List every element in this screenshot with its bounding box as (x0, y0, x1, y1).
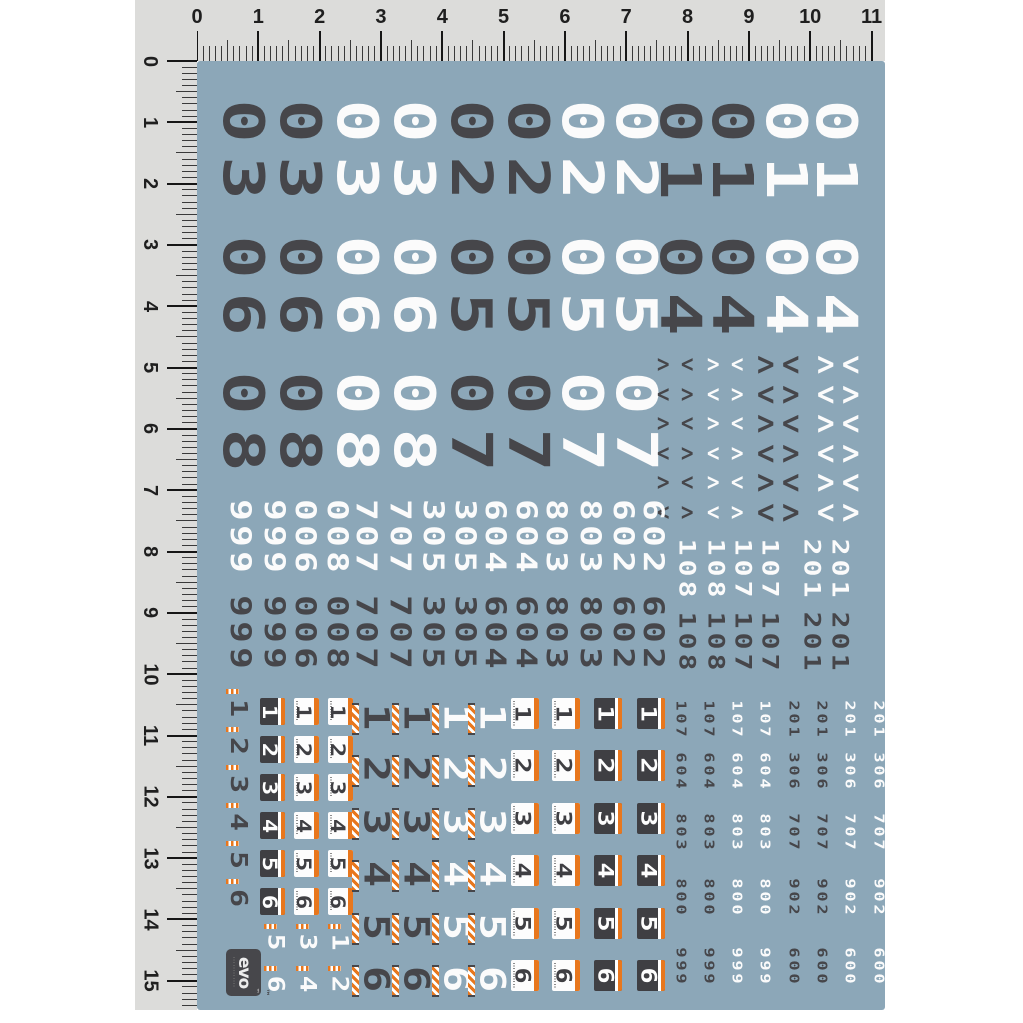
ruler-tick (528, 46, 529, 61)
chevron-icon: < (679, 409, 695, 439)
big-number-column-digit: 3 (222, 149, 266, 206)
medium-number-column-digit: 9 (261, 645, 285, 671)
ruler-tick (663, 46, 664, 61)
ruler-tick (755, 46, 756, 61)
number-box-decal: 5 (511, 908, 539, 939)
ruler-tick (182, 594, 197, 595)
ruler-tick (176, 520, 197, 521)
number-box-decal: 3 (328, 774, 353, 801)
chevron-icon: < (705, 439, 721, 469)
box-digit: 5 (637, 908, 659, 939)
ruler-tick (380, 31, 382, 61)
ruler-tick (718, 40, 719, 61)
mini-number-column-digit: 9 (757, 972, 772, 985)
stripe-bar (534, 855, 539, 886)
ruler-tick (650, 46, 651, 61)
number-box-decal: 4 (294, 812, 319, 839)
chevron-icon: < (755, 498, 777, 528)
small-number-column-digit: 0 (705, 630, 725, 651)
stripe-bar (575, 698, 580, 729)
stripe-bar (534, 750, 539, 781)
mini-number-column-digit: 9 (673, 972, 688, 985)
medium-number-column-digit: 6 (610, 593, 634, 619)
ruler-tick (182, 772, 197, 773)
medium-number-column-digit: 9 (261, 619, 285, 645)
mini-number-column-digit: 7 (814, 838, 829, 851)
box-digit: 6 (552, 960, 574, 991)
big-number-column-digit: 0 (279, 92, 323, 149)
ruler-tick (182, 232, 197, 233)
ruler-label: 1 (243, 6, 273, 29)
big-number-column-digit: 0 (615, 364, 659, 421)
number-box-decal: 6 (328, 888, 353, 915)
ruler-tick (182, 600, 197, 601)
medium-number-column-digit: 9 (261, 523, 285, 549)
ruler-label: 6 (550, 6, 580, 29)
ruler-tick (583, 46, 584, 61)
ruler-label: 6 (139, 416, 161, 442)
mini-number-column-digit: 0 (729, 903, 744, 916)
ruler-tick (182, 294, 197, 295)
ruler-tick (411, 40, 412, 61)
chevron-icon: < (729, 409, 745, 439)
stripe-bar (314, 774, 319, 801)
ruler-tick (176, 214, 197, 215)
medium-number-column-digit: 0 (292, 497, 316, 523)
ruler-tick (479, 46, 480, 61)
mini-number-column-digit: 0 (786, 825, 801, 838)
medium-number-column-digit: 7 (387, 549, 411, 575)
number-box-decal: 5 (637, 908, 665, 939)
medium-number-column-digit: 5 (452, 549, 476, 575)
mini-number-column-digit: 4 (757, 777, 772, 790)
tagged-digit-decal: 6 (402, 964, 428, 994)
big-number-column-digit: 8 (336, 421, 380, 478)
ruler-tick (497, 46, 498, 61)
box-digit: 4 (260, 812, 279, 839)
medium-number-column-digit: 7 (387, 645, 411, 671)
ruler-tick (362, 46, 363, 61)
ruler-tick (182, 238, 197, 239)
mini-number-column-digit: 8 (757, 877, 772, 890)
ruler-tick (176, 582, 197, 583)
ruler-tick (182, 539, 197, 540)
ruler-tick (182, 993, 197, 994)
mini-number-column-digit: 0 (673, 903, 688, 916)
big-number-column-digit: 8 (279, 421, 323, 478)
medium-number-column-digit: 3 (420, 497, 444, 523)
ruler-tick (182, 465, 197, 466)
mini-number-column-digit: 8 (673, 877, 688, 890)
ruler-tick (182, 784, 197, 785)
medium-number-column-digit: 8 (324, 549, 348, 575)
ruler-tick (182, 416, 197, 417)
stripe-bar (314, 812, 319, 839)
ruler-tick (182, 741, 197, 742)
tagged-digit-decal: 3 (442, 807, 468, 837)
small-number-column-digit: 0 (801, 557, 821, 578)
ruler-tick (182, 962, 197, 963)
small-number-column-digit: 0 (705, 557, 725, 578)
mini-number-column-digit: 3 (729, 838, 744, 851)
mini-number-column-digit: 2 (786, 903, 801, 916)
ruler-tick (182, 974, 197, 975)
chevron-icon: < (729, 468, 745, 498)
ruler-tick (182, 931, 197, 932)
trademark-symbol: ™ (253, 988, 260, 994)
ruler-tick (182, 116, 197, 117)
big-number-column-digit: 6 (336, 285, 380, 342)
mini-number-column-digit: 0 (757, 764, 772, 777)
big-number-column-digit: 0 (336, 364, 380, 421)
stripe-bar (534, 698, 539, 729)
ruler-label: 0 (182, 6, 212, 29)
small-number-column-digit: 1 (732, 536, 752, 557)
mini-number-column-digit: 0 (786, 959, 801, 972)
small-number-column-digit: 1 (676, 536, 696, 557)
ruler-tick (182, 753, 197, 754)
medium-number-column-digit: 7 (387, 497, 411, 523)
big-number-column-digit: 6 (393, 285, 437, 342)
box-digit: 1 (637, 698, 659, 729)
big-number-column-digit: 3 (336, 149, 380, 206)
ruler-tick (182, 527, 197, 528)
number-box-decal: 1 (260, 698, 285, 725)
mini-number-column-digit: 1 (729, 699, 744, 712)
small-number-column-digit: 8 (676, 578, 696, 599)
ruler-tick (491, 46, 492, 61)
box-digit: 2 (511, 750, 533, 781)
ruler-tick (209, 46, 210, 61)
ruler-tick (182, 913, 197, 914)
box-digit: 6 (260, 888, 279, 915)
mini-number-column-digit: 9 (871, 877, 886, 890)
box-digit: 4 (637, 855, 659, 886)
chevron-icon: < (729, 350, 745, 380)
medium-number-column-digit: 0 (292, 523, 316, 549)
ruler-tick (182, 435, 197, 436)
ruler-tick (176, 643, 197, 644)
number-box-decal: 1 (294, 698, 319, 725)
mini-number-column-digit: 8 (701, 877, 716, 890)
ruler-tick (472, 40, 473, 61)
ruler-tick (182, 661, 197, 662)
ruler-tick (344, 46, 345, 61)
number-box-decal: 6 (260, 888, 285, 915)
number-box-decal: 5 (552, 908, 580, 939)
tagged-digit-decal: 3 (298, 931, 316, 953)
number-box-decal: 1 (328, 698, 353, 725)
box-digit: 2 (637, 750, 659, 781)
chevron-icon: > (780, 498, 802, 528)
ruler-tick (182, 441, 197, 442)
mini-number-column-digit: 3 (842, 751, 857, 764)
medium-number-column-digit: 0 (292, 619, 316, 645)
stripe-bar (534, 960, 539, 991)
mini-number-column-digit: 1 (871, 725, 886, 738)
mini-number-column-digit: 0 (786, 764, 801, 777)
ruler-label: 11 (857, 6, 887, 29)
box-digit: 4 (328, 812, 347, 839)
ruler-tick (182, 103, 197, 104)
ruler-tick (319, 31, 321, 61)
chevron-icon: < (655, 439, 671, 469)
ruler-tick (182, 588, 197, 589)
medium-number-column-digit: 2 (610, 549, 634, 575)
mini-number-column-digit: 8 (673, 812, 688, 825)
medium-number-column-digit: 6 (640, 497, 664, 523)
chevron-icon: > (655, 350, 671, 380)
chevron-icon: > (840, 498, 862, 528)
tagged-digit-decal: 2 (228, 734, 248, 758)
ruler-tick (828, 46, 829, 61)
ruler-tick (182, 379, 197, 380)
number-box-decal: 4 (637, 855, 665, 886)
mini-number-column-digit: 0 (673, 764, 688, 777)
box-digit: 5 (511, 908, 533, 939)
ruler-tick (724, 46, 725, 61)
ruler-tick (436, 46, 437, 61)
big-number-column-digit: 2 (561, 149, 605, 206)
stripe-bar (575, 803, 580, 834)
ruler-tick (589, 46, 590, 61)
medium-number-column-digit: 9 (227, 593, 251, 619)
ruler-tick (748, 31, 750, 61)
ruler-tick (288, 40, 289, 61)
mini-number-column-digit: 2 (871, 903, 886, 916)
ruler-tick (176, 275, 197, 276)
ruler-tick (295, 46, 296, 61)
big-number-column-digit: 0 (815, 228, 859, 285)
mini-number-column-digit: 0 (757, 825, 772, 838)
medium-number-column-digit: 2 (610, 645, 634, 671)
big-number-column-digit: 0 (222, 364, 266, 421)
ruler-tick (167, 367, 197, 369)
ruler-tick (182, 165, 197, 166)
ruler-tick (167, 735, 197, 737)
ruler-tick (182, 146, 197, 147)
chevron-icon: < (679, 350, 695, 380)
mini-number-column-digit: 0 (701, 712, 716, 725)
ruler-tick (859, 46, 860, 61)
tagged-digit-decal: 5 (266, 931, 284, 953)
stripe-bar (575, 908, 580, 939)
mini-number-column-digit: 9 (786, 877, 801, 890)
medium-number-column-digit: 2 (640, 549, 664, 575)
ruler-tick (325, 46, 326, 61)
ruler-tick (182, 576, 197, 577)
medium-number-column-digit: 9 (227, 497, 251, 523)
ruler-tick (182, 202, 197, 203)
ruler-tick (182, 668, 197, 669)
ruler-tick (182, 453, 197, 454)
stripe-tag (328, 966, 341, 971)
decal-sheet-screenshot: evo ™ 0306080306080306080306080205070205… (0, 0, 1023, 1023)
mini-number-column-digit: 7 (871, 812, 886, 825)
mini-number-column-digit: 0 (814, 972, 829, 985)
ruler-tick (822, 46, 823, 61)
small-number-column-digit: 1 (759, 536, 779, 557)
ruler-tick (182, 937, 197, 938)
ruler-tick (809, 31, 811, 61)
tagged-digit-decal: 5 (442, 912, 468, 942)
small-number-column-digit: 1 (829, 578, 849, 599)
mini-number-column-digit: 0 (701, 903, 716, 916)
mini-number-column-digit: 3 (701, 838, 716, 851)
medium-number-column-digit: 7 (353, 549, 377, 575)
box-digit: 1 (294, 698, 313, 725)
ruler-tick (840, 40, 841, 61)
ruler-tick (182, 97, 197, 98)
ruler-tick (167, 305, 197, 307)
mini-number-column-digit: 4 (673, 777, 688, 790)
mini-number-column-digit: 1 (814, 725, 829, 738)
ruler-tick (167, 244, 197, 246)
tagged-digit-decal: 4 (362, 859, 388, 889)
big-number-column-digit: 5 (450, 285, 494, 342)
stripe-tag (328, 924, 341, 929)
ruler-tick (182, 349, 197, 350)
number-box-decal: 1 (552, 698, 580, 729)
mini-number-column-digit: 6 (842, 946, 857, 959)
tagged-digit-decal: 5 (402, 912, 428, 942)
big-number-column-digit: 5 (507, 285, 551, 342)
ruler-tick (182, 569, 197, 570)
ruler-tick (509, 46, 510, 61)
ruler-tick (182, 67, 197, 68)
ruler-label: 10 (139, 661, 161, 687)
ruler-tick (182, 845, 197, 846)
medium-number-column-digit: 9 (227, 645, 251, 671)
ruler-tick (681, 46, 682, 61)
medium-number-column-digit: 9 (261, 593, 285, 619)
ruler-tick (270, 46, 271, 61)
mini-number-column-digit: 1 (786, 725, 801, 738)
ruler-tick (182, 281, 197, 282)
ruler-tick (182, 625, 197, 626)
ruler-tick (571, 46, 572, 61)
mini-number-column-digit: 6 (701, 751, 716, 764)
mini-number-column-digit: 3 (757, 838, 772, 851)
mini-number-column-digit: 0 (729, 764, 744, 777)
ruler-tick (182, 361, 197, 362)
number-box-decal: 5 (294, 850, 319, 877)
ruler-label: 10 (795, 6, 825, 29)
mini-number-column-digit: 6 (871, 777, 886, 790)
evo-logo: evo ™ (226, 949, 261, 996)
stripe-bar (314, 698, 319, 725)
mini-number-column-digit: 9 (757, 959, 772, 972)
mini-number-column-digit: 7 (673, 725, 688, 738)
box-digit: 3 (260, 774, 279, 801)
decal-sheet: evo ™ 0306080306080306080306080205070205… (197, 61, 885, 1010)
ruler-tick (182, 269, 197, 270)
ruler-label: 1 (139, 109, 161, 135)
medium-number-column-digit: 4 (482, 549, 506, 575)
ruler-tick (182, 257, 197, 258)
evo-logo-text: evo (235, 957, 252, 988)
mini-number-column-digit: 9 (701, 959, 716, 972)
box-digit: 1 (552, 698, 574, 729)
mini-number-column-digit: 7 (729, 725, 744, 738)
big-number-column-digit: 0 (659, 228, 703, 285)
medium-number-column-digit: 0 (353, 523, 377, 549)
ruler-tick (221, 46, 222, 61)
ruler-tick (466, 46, 467, 61)
medium-number-column-digit: 0 (577, 619, 601, 645)
ruler-tick (182, 300, 197, 301)
mini-number-column-digit: 2 (842, 903, 857, 916)
mini-number-column-digit: 6 (757, 751, 772, 764)
stripe-bar (314, 850, 319, 877)
ruler-tick (182, 447, 197, 448)
box-digit: 4 (552, 855, 574, 886)
ruler-tick (182, 385, 197, 386)
ruler-tick (182, 821, 197, 822)
ruler-tick (182, 901, 197, 902)
ruler-tick (182, 189, 197, 190)
big-number-column-digit: 7 (507, 421, 551, 478)
mini-number-column-digit: 0 (814, 764, 829, 777)
ruler-tick (176, 398, 197, 399)
small-number-column-digit: 0 (676, 630, 696, 651)
mini-number-column-digit: 0 (842, 825, 857, 838)
medium-number-column-digit: 0 (640, 619, 664, 645)
mini-number-column-digit: 0 (871, 890, 886, 903)
mini-number-column-digit: 2 (842, 699, 857, 712)
ruler-tick (182, 263, 197, 264)
ruler-tick (182, 140, 197, 141)
ruler-tick (638, 46, 639, 61)
small-number-column-digit: 8 (705, 578, 725, 599)
medium-number-column-digit: 6 (640, 593, 664, 619)
ruler-label: 2 (305, 6, 335, 29)
ruler-tick (182, 698, 197, 699)
tagged-digit-decal: 4 (228, 810, 248, 834)
ruler-tick (182, 545, 197, 546)
medium-number-column-digit: 0 (324, 619, 348, 645)
stripe-tag (296, 966, 309, 971)
medium-number-column-digit: 9 (227, 619, 251, 645)
ruler-tick (246, 46, 247, 61)
medium-number-column-digit: 0 (513, 523, 537, 549)
tagged-digit-decal: 4 (442, 859, 468, 889)
ruler-tick (430, 46, 431, 61)
ruler-tick (182, 968, 197, 969)
small-number-column-digit: 0 (829, 557, 849, 578)
ruler-label: 3 (366, 6, 396, 29)
mini-number-column-digit: 9 (729, 946, 744, 959)
stripe-tag (226, 765, 239, 770)
medium-number-column-digit: 8 (543, 497, 567, 523)
number-box-decal: 6 (637, 960, 665, 991)
ruler-tick (257, 31, 259, 61)
ruler-tick (307, 46, 308, 61)
mini-number-column-digit: 2 (786, 699, 801, 712)
ruler-tick (577, 46, 578, 61)
ruler-label: 8 (673, 6, 703, 29)
medium-number-column-digit: 0 (324, 593, 348, 619)
ruler-tick (182, 882, 197, 883)
mini-number-column-digit: 0 (814, 825, 829, 838)
mini-number-column-digit: 9 (673, 946, 688, 959)
ruler-tick (282, 46, 283, 61)
chevron-icon: > (729, 498, 745, 528)
box-digit: 3 (511, 803, 533, 834)
box-digit: 3 (594, 803, 616, 834)
ruler-tick (167, 673, 197, 675)
stripe-bar (575, 960, 580, 991)
